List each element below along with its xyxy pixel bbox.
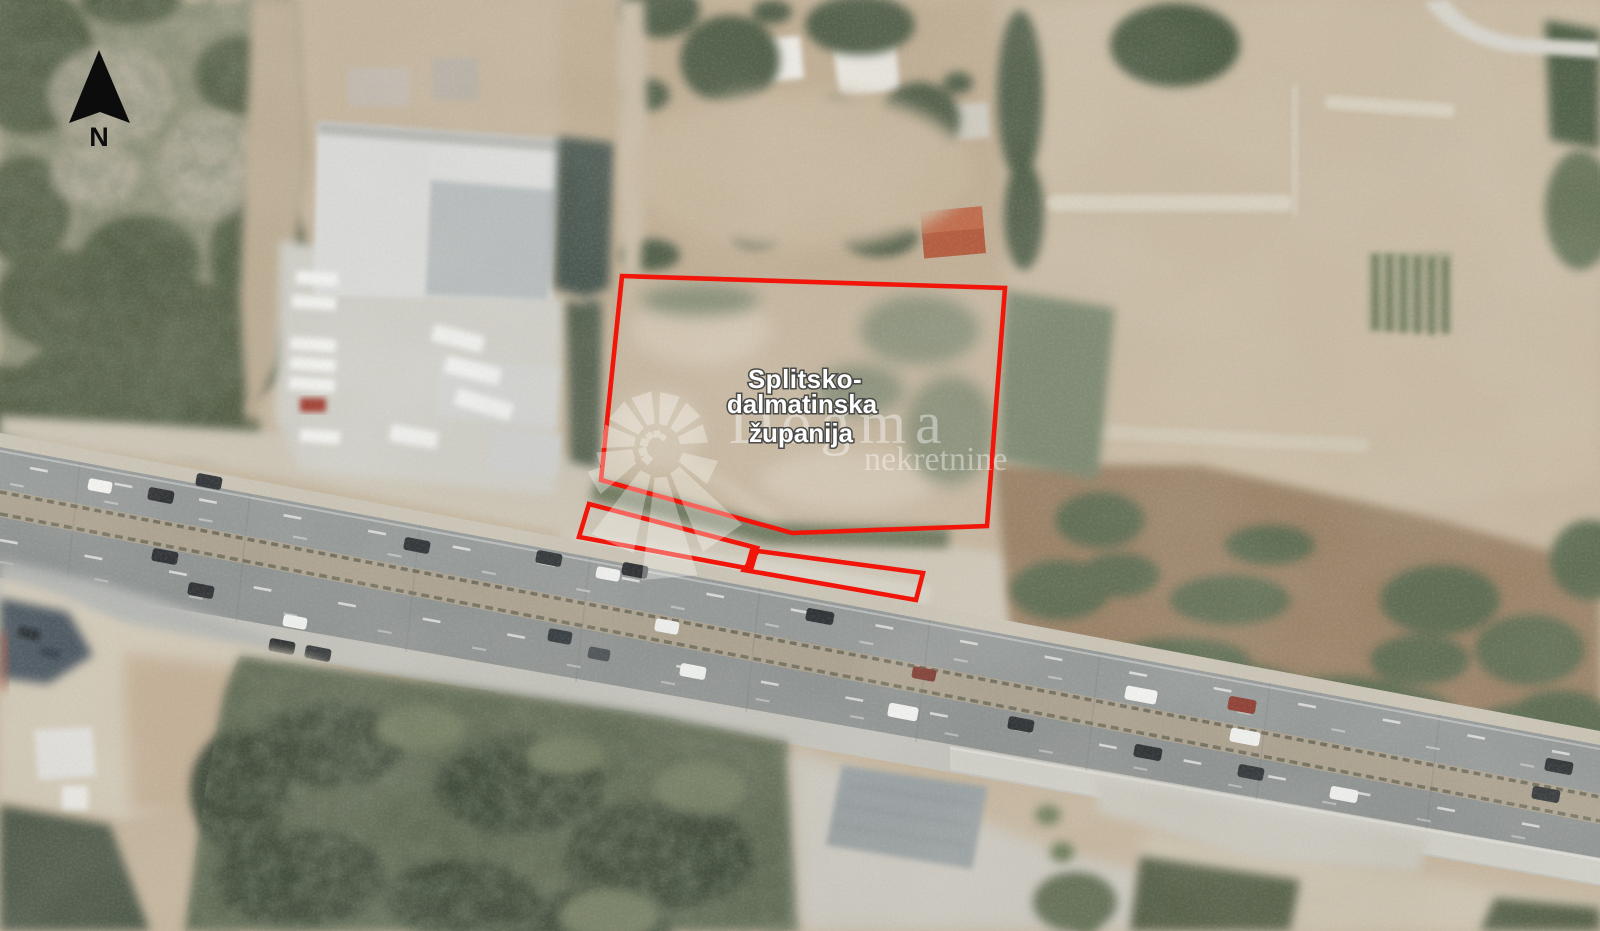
svg-text:županija: županija (749, 418, 854, 448)
svg-text:N: N (89, 122, 109, 152)
svg-text:nekretnine: nekretnine (864, 441, 1008, 478)
svg-text:dalmatinska: dalmatinska (727, 389, 878, 419)
